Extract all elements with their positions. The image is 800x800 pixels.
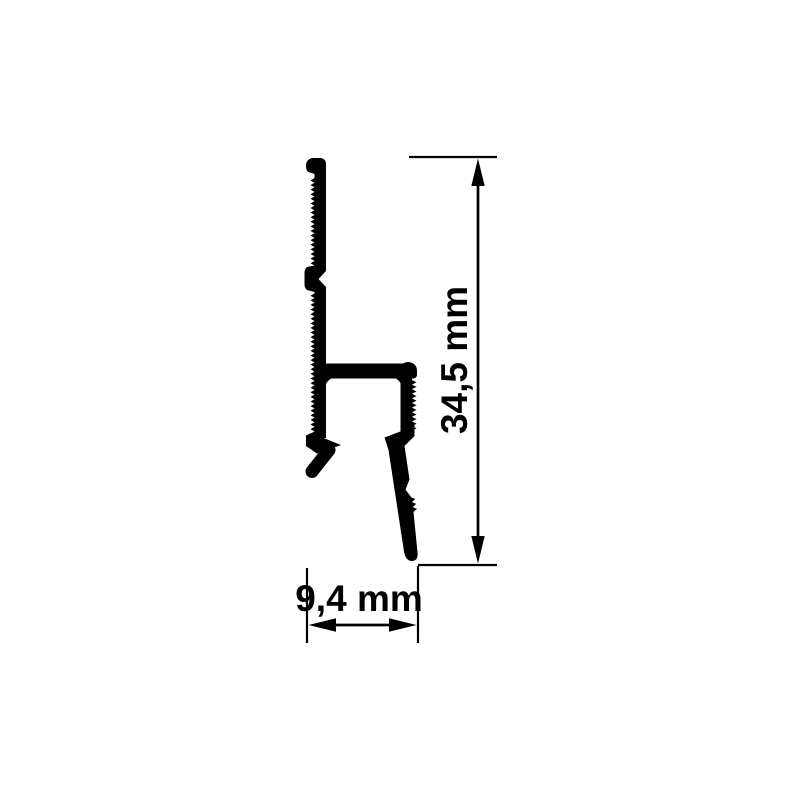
profile-bottom-hook-stroke <box>312 450 329 472</box>
profile-main-bar <box>305 158 327 438</box>
diagram-canvas: 34,5 mm 9,4 mm <box>0 0 800 800</box>
rail-profile-cross-section <box>305 158 418 561</box>
profile-inner-fillet-left <box>325 377 336 388</box>
profile-bottom-leg <box>385 424 418 561</box>
width-dimension-label: 9,4 mm <box>295 578 423 619</box>
rail-profile-diagram: 34,5 mm 9,4 mm <box>0 0 800 800</box>
dim-height-arrow-up-icon <box>471 159 484 187</box>
dim-width-arrow-left-icon <box>309 618 337 631</box>
profile-inner-fillet-right <box>391 377 402 388</box>
dim-height-arrow-down-icon <box>471 536 484 564</box>
height-dimension-label: 34,5 mm <box>434 286 475 434</box>
profile-top-arm <box>314 362 417 379</box>
dim-width-arrow-right-icon <box>389 618 417 631</box>
